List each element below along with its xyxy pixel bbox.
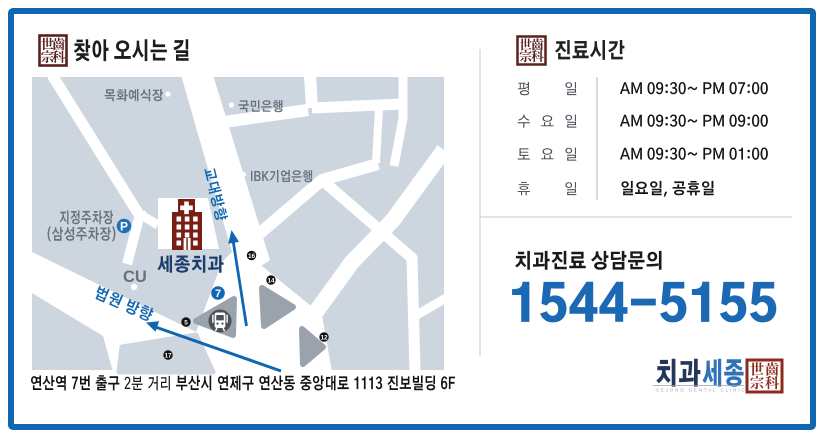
svg-text:12: 12 [320,334,328,341]
svg-text:17: 17 [164,352,172,359]
svg-text:16: 16 [248,253,256,260]
svg-text:14: 14 [267,277,275,284]
svg-text:P: P [120,220,128,234]
svg-text:SEJONG DENTAL CLINIC: SEJONG DENTAL CLINIC [656,387,747,392]
svg-text:5: 5 [184,319,188,326]
svg-text:7: 7 [215,288,221,300]
svg-text:CU: CU [123,268,147,286]
